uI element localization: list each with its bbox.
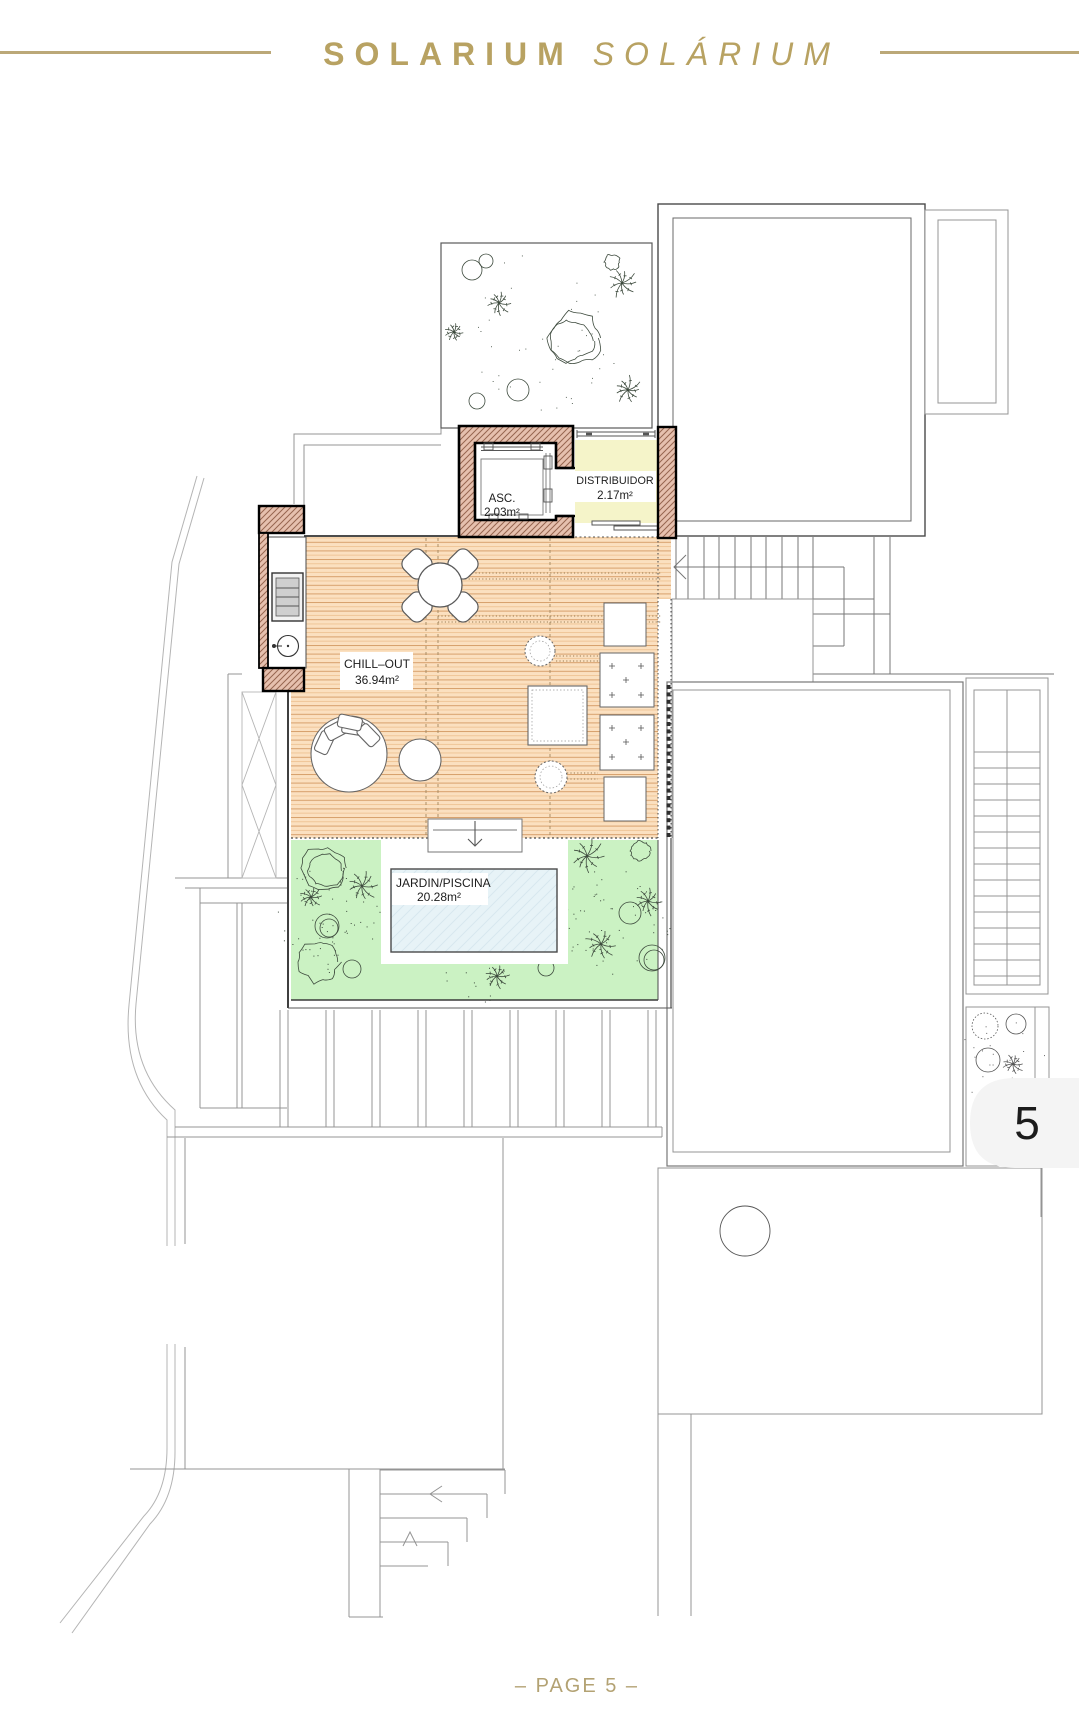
- svg-text:DISTRIBUIDOR: DISTRIBUIDOR: [576, 475, 654, 487]
- svg-text:5: 5: [1014, 1097, 1040, 1149]
- svg-text:2.17m²: 2.17m²: [597, 490, 633, 502]
- svg-text:ASC.: ASC.: [489, 493, 516, 505]
- svg-text:JARDIN/PISCINA: JARDIN/PISCINA: [396, 876, 491, 890]
- svg-text:2.03m²: 2.03m²: [484, 507, 520, 519]
- svg-text:CHILL–OUT: CHILL–OUT: [344, 657, 411, 671]
- svg-text:36.94m²: 36.94m²: [355, 673, 399, 687]
- svg-text:20.28m²: 20.28m²: [417, 890, 461, 904]
